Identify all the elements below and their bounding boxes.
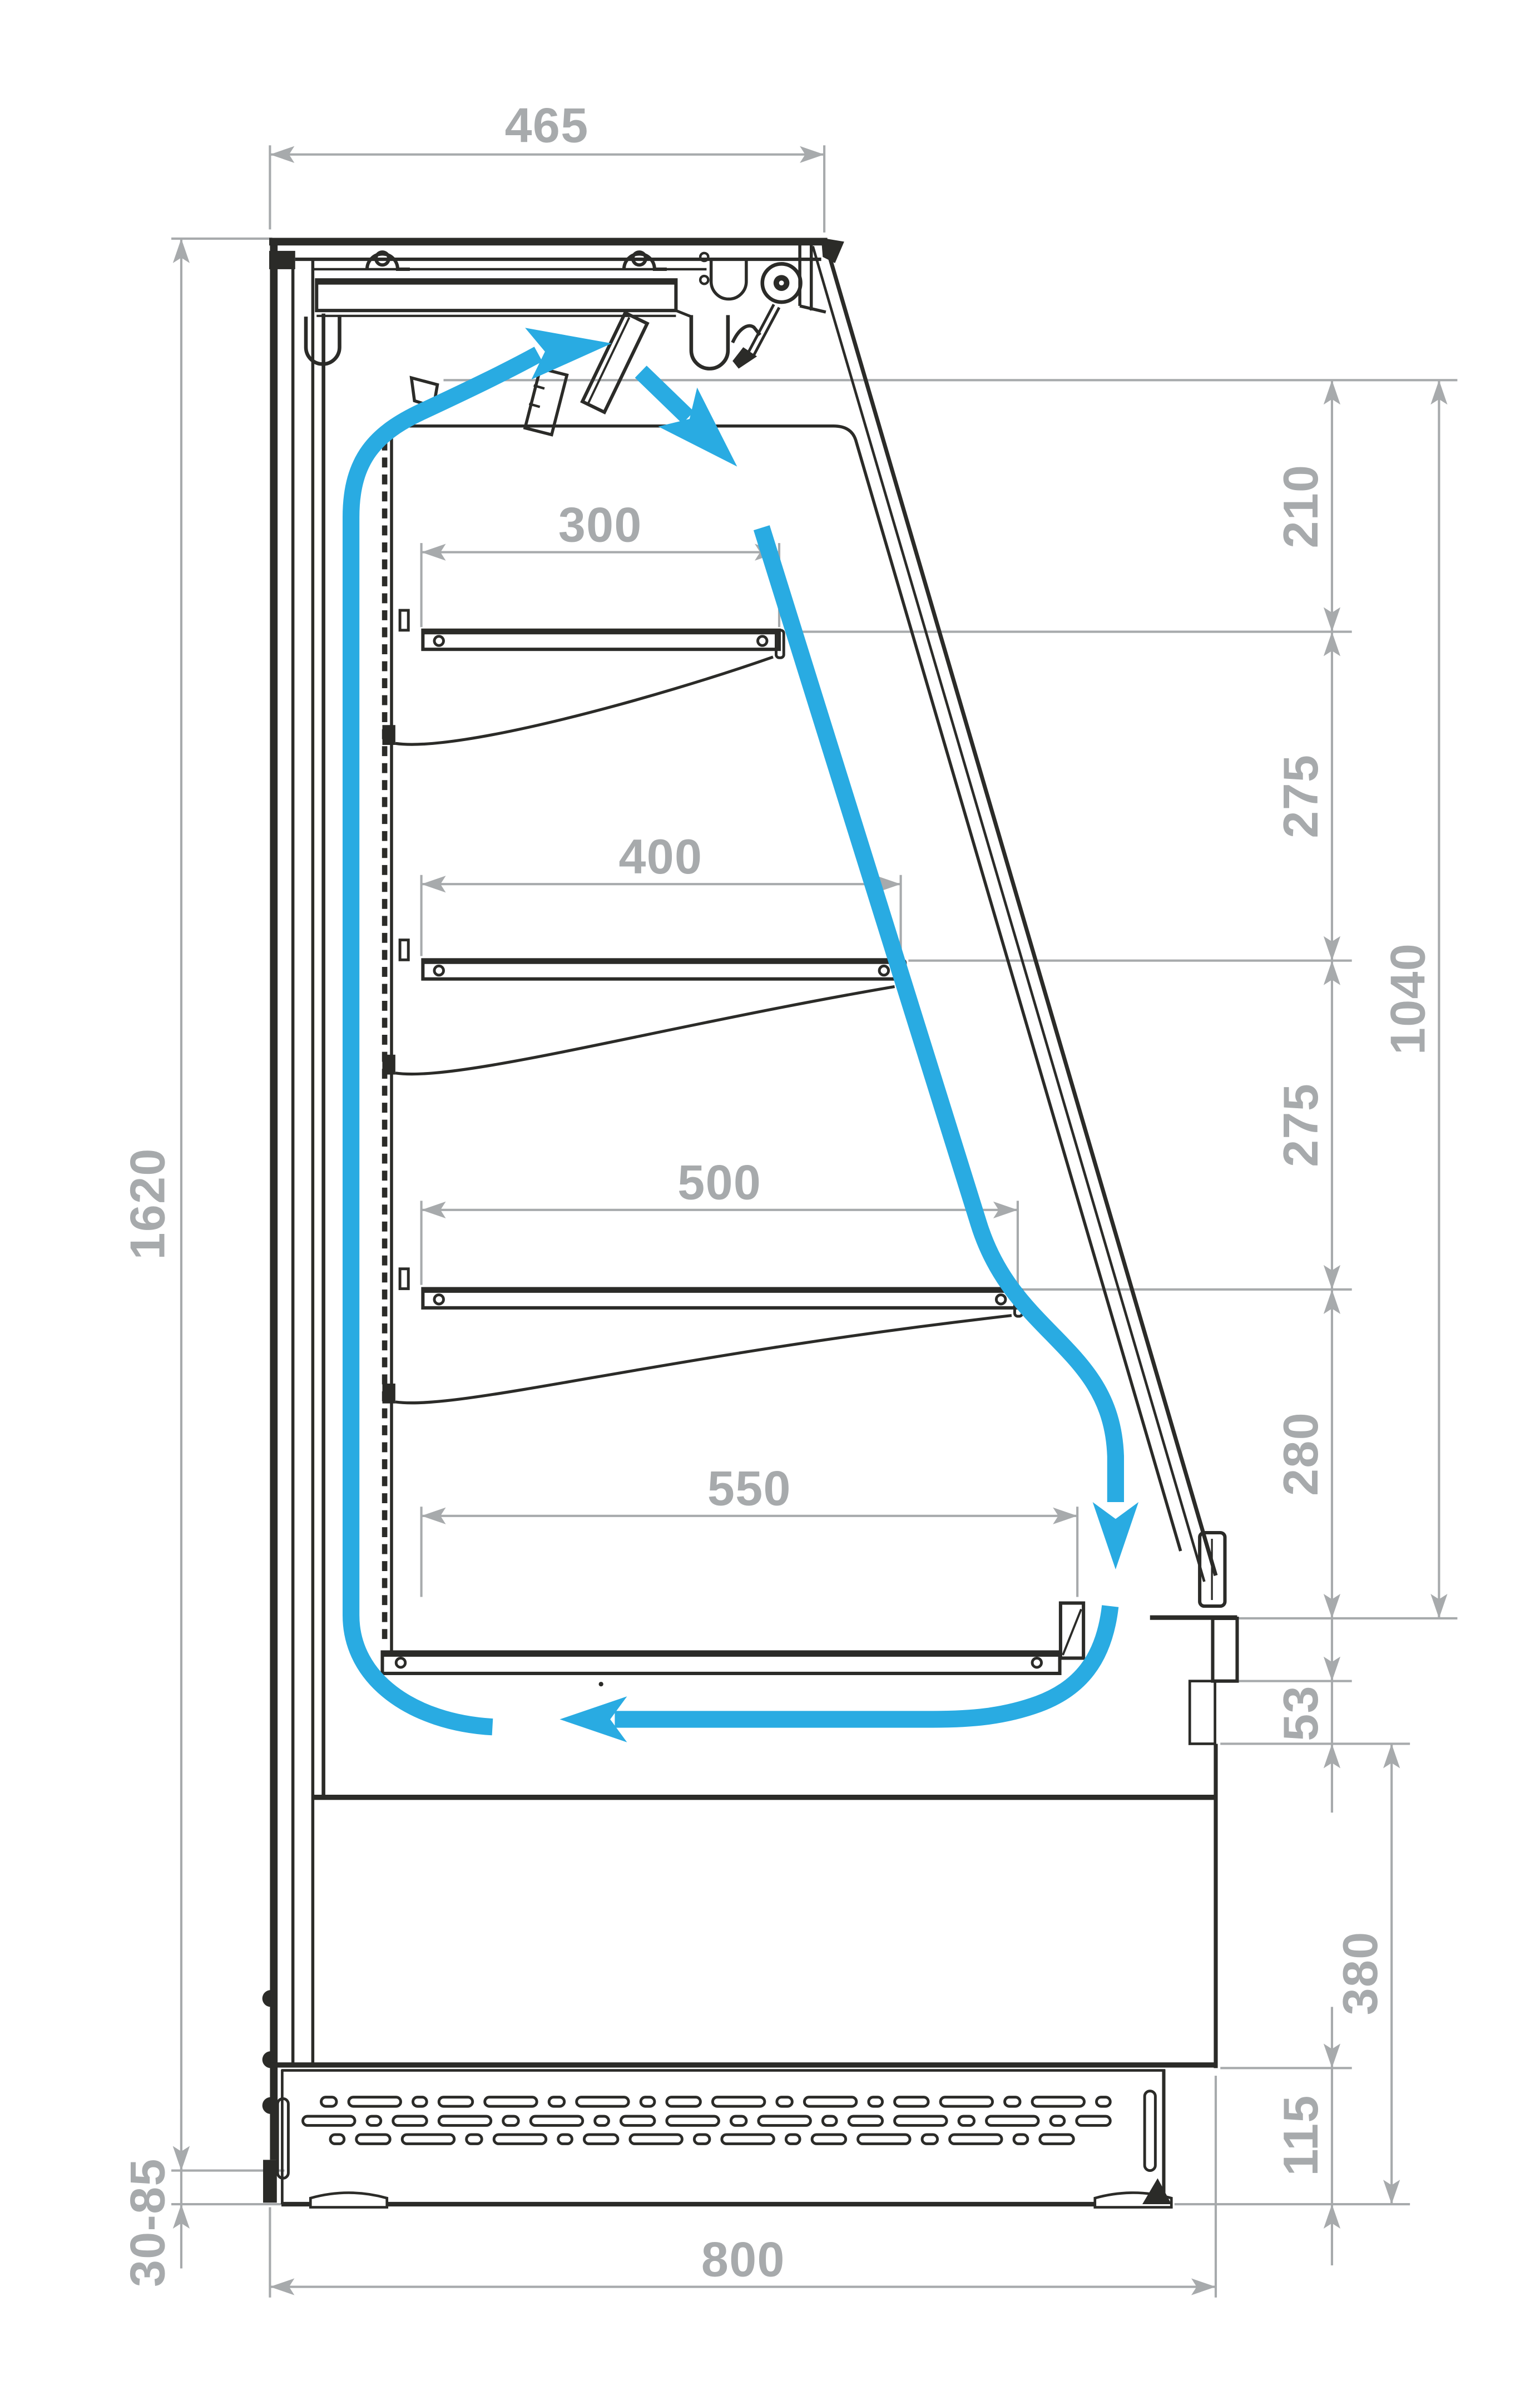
front-bumper (1150, 1618, 1237, 2068)
discharge-vane (582, 313, 647, 412)
dimension-label-shelf2_depth: 400 (618, 829, 702, 884)
front-glass (813, 239, 1225, 1606)
rear-foot (263, 2160, 277, 2203)
vent-slot (439, 2097, 472, 2106)
vent-slot (950, 2135, 1002, 2144)
vent-slot (895, 2116, 947, 2125)
vent-slot (621, 2116, 654, 2125)
vent-slot (959, 2116, 974, 2125)
vent-slot (330, 2135, 344, 2144)
dimension-label-shelf3_to_base_shelf: 280 (1273, 1412, 1328, 1496)
shelf (382, 1269, 1022, 1404)
dimension-label-air_outlet_to_shelf1: 210 (1273, 465, 1328, 549)
vent-slot (595, 2116, 609, 2125)
vent-slot (786, 2135, 800, 2144)
back-wall (263, 239, 324, 2203)
cabinet-structure (263, 238, 1237, 2208)
vent-slot (641, 2097, 655, 2106)
foot-arch (310, 2192, 387, 2207)
hinge-bump (263, 2097, 271, 2114)
vent-slot (577, 2097, 628, 2106)
discharge-stream (641, 372, 688, 417)
vent-slot (584, 2135, 617, 2144)
vent-slot (849, 2116, 882, 2125)
vent-slot (667, 2116, 719, 2125)
return-air-inlet (1190, 1681, 1215, 1744)
dimension-label-front_air_gap: 53 (1273, 1685, 1328, 1741)
vent-slot (503, 2116, 518, 2125)
dimension-annotations: 4653004005005508001620210275275280104053… (120, 98, 1458, 2298)
vent-slot (393, 2116, 427, 2125)
vent-slot (531, 2116, 582, 2125)
airflow-loop (351, 318, 1138, 1742)
vent-slot (402, 2135, 454, 2144)
vent-slot (759, 2116, 810, 2125)
vent-slot (667, 2097, 700, 2106)
shelf (382, 610, 784, 745)
dimension-label-foot_height_range: 30-85 (120, 2158, 175, 2287)
base-and-grille (271, 2065, 1216, 2208)
dimension-label-base_section_height: 380 (1333, 1931, 1388, 2015)
vent-slot (823, 2116, 836, 2125)
vent-slot (558, 2135, 572, 2144)
front-return-arrow (1093, 1502, 1138, 1569)
grille-end-slot (1145, 2091, 1155, 2171)
vent-slot (712, 2097, 764, 2106)
dimension-label-overall_depth: 800 (701, 2231, 785, 2287)
dimension-label-top_depth: 465 (505, 98, 589, 153)
dimension-label-display_opening_height: 1040 (1380, 943, 1435, 1055)
vent-slot (349, 2097, 400, 2106)
vent-slot (1097, 2097, 1111, 2106)
shelves (382, 610, 1022, 1404)
base-deck (313, 1603, 1216, 1797)
vent-slot (940, 2097, 992, 2106)
display-case-section-diagram: 4653004005005508001620210275275280104053… (0, 0, 1540, 2400)
vent-slot (694, 2135, 709, 2144)
vent-slot (1077, 2116, 1110, 2125)
vent-slot (467, 2135, 482, 2144)
vent-slot (549, 2097, 564, 2106)
vent-slot (413, 2097, 427, 2106)
vent-slot (1051, 2116, 1064, 2125)
vent-slot (321, 2097, 336, 2106)
vent-slot (494, 2135, 546, 2144)
vent-slot (722, 2135, 774, 2144)
vent-slot (731, 2116, 746, 2125)
vent-slot (439, 2116, 491, 2125)
front-foot (1142, 2178, 1171, 2204)
shelf (382, 940, 905, 1075)
dimension-label-base_shelf_depth: 550 (707, 1461, 791, 1516)
vane-strut (732, 304, 779, 368)
vent-slot (777, 2097, 792, 2106)
dimension-label-shelf1_to_shelf2: 275 (1273, 754, 1328, 838)
vent-slot (1040, 2135, 1073, 2144)
vent-slot (804, 2097, 856, 2106)
vent-slot (303, 2116, 355, 2125)
vent-slot (367, 2116, 381, 2125)
vent-slot (356, 2135, 390, 2144)
vent-slot (1005, 2097, 1020, 2106)
vent-slot (987, 2116, 1038, 2125)
vent-slot (812, 2135, 845, 2144)
vent-slot (485, 2097, 537, 2106)
base-return-stream (615, 1606, 1110, 1719)
lamp-bracket (691, 315, 728, 368)
vent-slot (1014, 2135, 1028, 2144)
vent-grille-slots (303, 2097, 1111, 2144)
hinge-bump (263, 2051, 271, 2068)
hinge-bump (263, 1990, 271, 2007)
vent-slot (869, 2097, 883, 2106)
vent-slot (1032, 2097, 1084, 2106)
dimension-label-shelf1_depth: 300 (558, 497, 642, 552)
vent-slot (895, 2097, 928, 2106)
shelf-standards (385, 428, 392, 1652)
dimension-label-vent_grille_height: 115 (1273, 2095, 1328, 2176)
vent-slot (858, 2135, 910, 2144)
wall-top-cap (269, 251, 295, 269)
dimension-label-overall_height: 1620 (120, 1148, 175, 1260)
top-discharge-arrow (525, 318, 615, 379)
air-duct-box (316, 280, 691, 317)
vent-slot (630, 2135, 682, 2144)
dimension-label-shelf3_depth: 500 (677, 1155, 761, 1210)
vent-slot (922, 2135, 937, 2144)
dimension-label-shelf2_to_shelf3: 275 (1273, 1083, 1328, 1167)
